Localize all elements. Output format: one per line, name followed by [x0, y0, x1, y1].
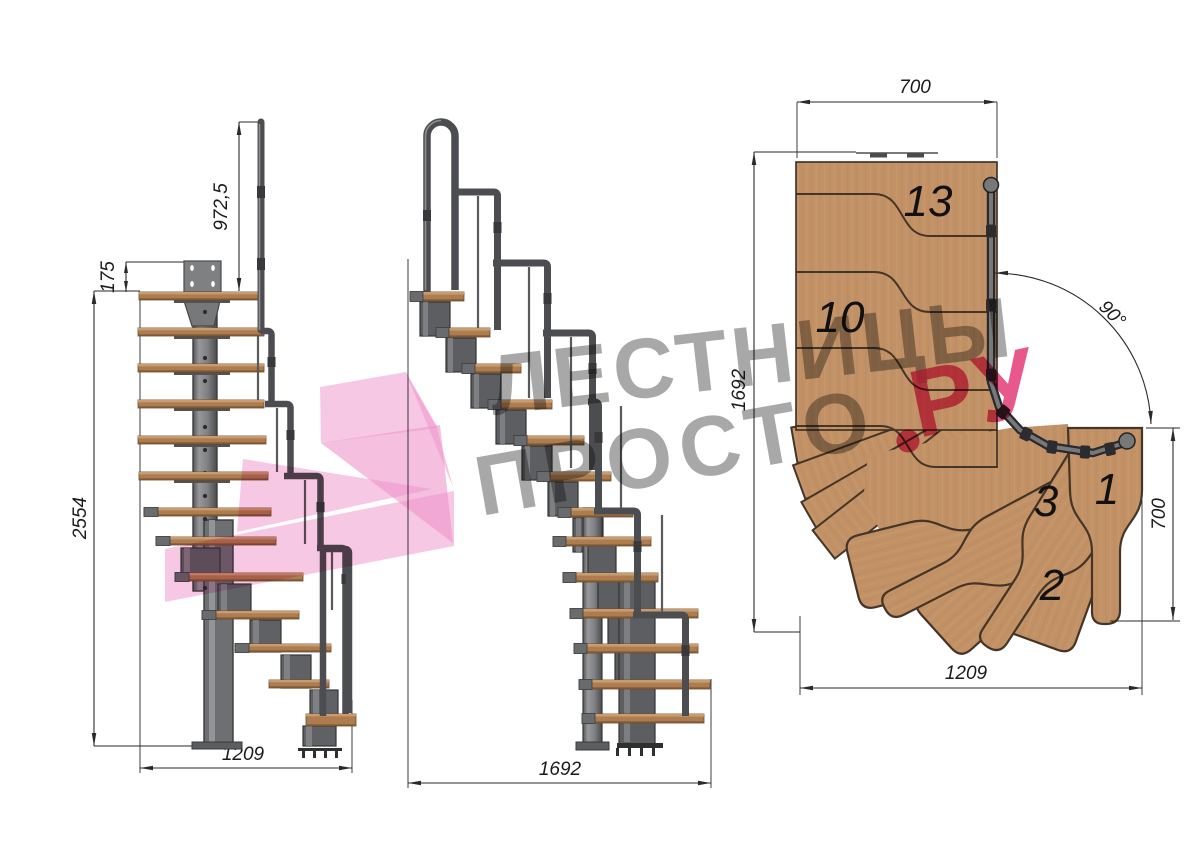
- svg-text:972,5: 972,5: [211, 183, 232, 231]
- svg-text:175: 175: [98, 261, 119, 293]
- svg-text:700: 700: [1149, 498, 1170, 530]
- svg-text:700: 700: [899, 77, 931, 98]
- svg-text:3: 3: [1034, 477, 1059, 526]
- svg-text:1209: 1209: [945, 663, 988, 684]
- svg-text:2554: 2554: [70, 497, 91, 540]
- svg-text:1692: 1692: [539, 759, 582, 780]
- svg-text:2: 2: [1039, 561, 1064, 610]
- svg-text:13: 13: [904, 177, 953, 226]
- svg-text:1: 1: [1095, 465, 1119, 514]
